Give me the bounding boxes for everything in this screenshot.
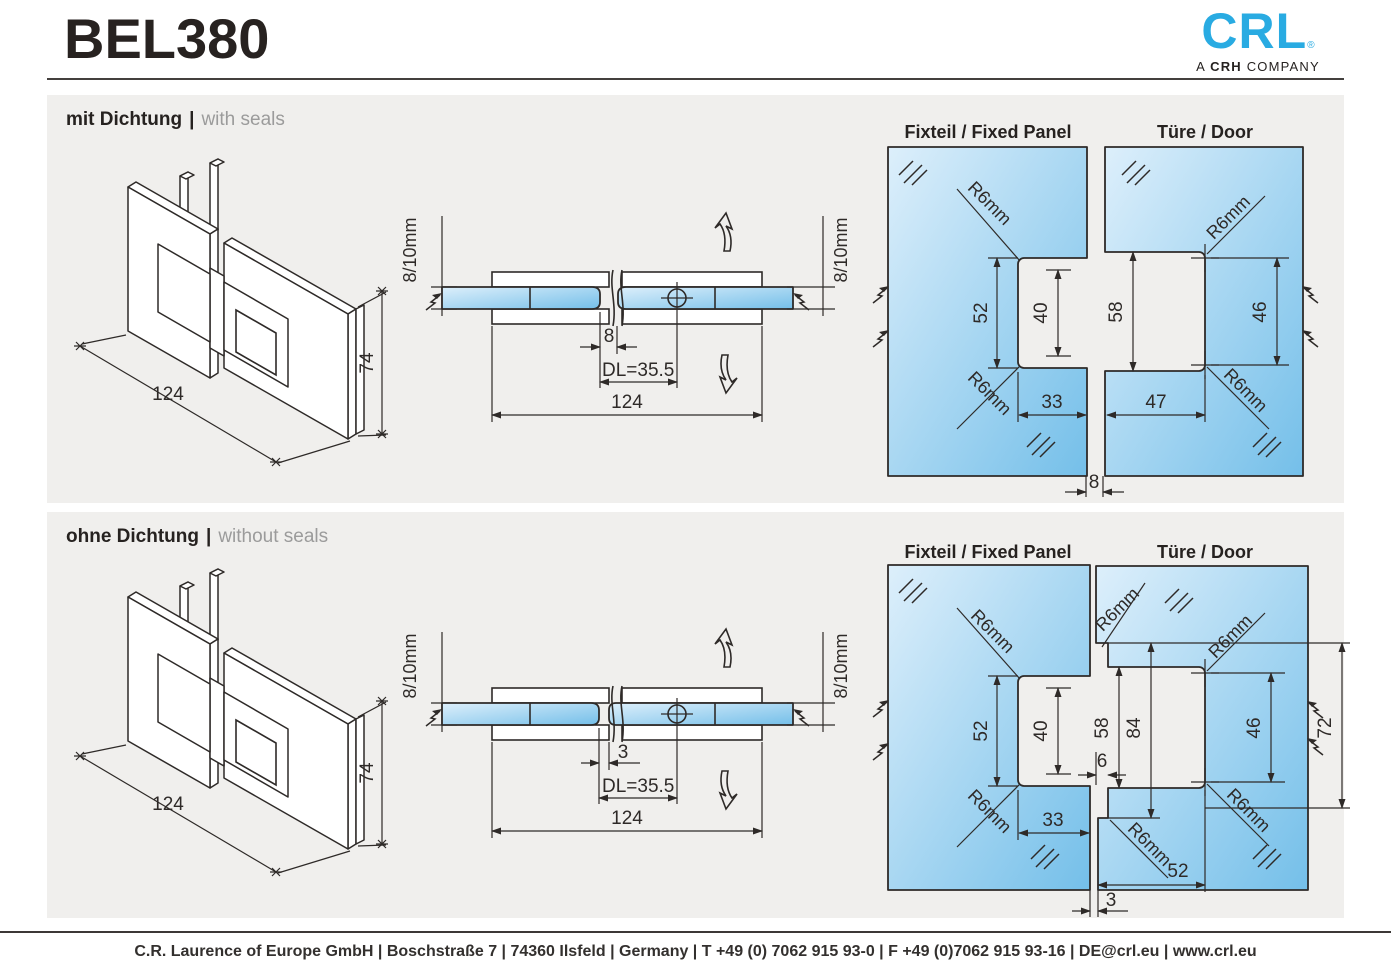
cross-section-drawing: 8/10mm 8/10mm 8 DL=35.5 — [395, 192, 865, 437]
crl-logo-wordmark: CRL — [1201, 6, 1307, 56]
glass-thickness-label: 8/10mm — [831, 217, 851, 282]
swing-up-arrow-icon — [715, 629, 732, 667]
glass-left — [442, 287, 600, 309]
dim-52: 52 — [971, 720, 992, 741]
overall-dim-label: 124 — [611, 392, 643, 413]
section-heading: mit Dichtung|with seals — [66, 109, 285, 131]
logo-sub-prefix: A — [1196, 59, 1205, 74]
section-heading: ohne Dichtung|without seals — [66, 526, 328, 548]
dim-40: 40 — [1031, 720, 1052, 741]
page-title: BEL380 — [64, 8, 269, 70]
dim-58: 58 — [1106, 301, 1127, 322]
gap-dim-label: 3 — [618, 742, 629, 763]
crl-logo-subline: A CRH COMPANY — [1178, 59, 1338, 74]
heading-german: mit Dichtung — [66, 109, 182, 130]
dim-33: 33 — [1041, 392, 1062, 413]
section-without-seals: ohne Dichtung|without seals 124 — [47, 512, 1344, 918]
gap-label: 3 — [1106, 890, 1117, 911]
dl-dimension: DL=35.5 — [599, 730, 677, 804]
glass-left — [442, 703, 599, 725]
footer-divider — [0, 931, 1391, 933]
dim-47: 47 — [1145, 392, 1166, 413]
dl-dim-label: DL=35.5 — [602, 776, 674, 797]
swing-down-arrow-icon — [720, 355, 737, 393]
heading-divider: | — [189, 109, 194, 130]
glass-thickness-right: 8/10mm — [787, 632, 851, 732]
dl-dim-label: DL=35.5 — [602, 360, 674, 381]
iso-width-dim: 124 — [152, 794, 184, 815]
datasheet-page: { "header": { "title": "BEL380" }, "logo… — [0, 0, 1391, 973]
glass-thickness-right: 8/10mm — [787, 216, 851, 316]
swing-down-arrow-icon — [720, 771, 737, 809]
section-with-seals: mit Dichtung|with seals 124 — [47, 95, 1344, 503]
dim-46: 46 — [1244, 717, 1265, 738]
swing-up-arrow-icon — [715, 213, 732, 251]
overall-dim-label: 124 — [611, 808, 643, 829]
door-title: Türe / Door — [1157, 542, 1253, 562]
dim-52-door: 52 — [1167, 861, 1188, 882]
heading-german: ohne Dichtung — [66, 526, 199, 547]
heading-english: with seals — [201, 109, 284, 130]
fixed-panel-title: Fixteil / Fixed Panel — [904, 542, 1071, 562]
glass-prep-drawing: Fixteil / Fixed Panel Türe / Door 52 40 … — [875, 115, 1355, 507]
glass-prep-drawing: Fixteil / Fixed Panel Türe / Door 52 40 … — [875, 545, 1375, 945]
glass-thickness-label: 8/10mm — [831, 633, 851, 698]
door-glass — [1105, 147, 1303, 476]
glass-thickness-label: 8/10mm — [400, 633, 420, 698]
dim-84: 84 — [1124, 717, 1145, 739]
door-title: Türe / Door — [1157, 122, 1253, 142]
glass-right — [618, 287, 793, 309]
panel-gap-dim: 3 — [1072, 890, 1128, 917]
iso-hinge-drawing: 124 74 — [60, 150, 400, 480]
heading-divider: | — [206, 526, 211, 547]
logo-sub-company: COMPANY — [1247, 59, 1320, 74]
footer-company-info: C.R. Laurence of Europe GmbH | Boschstra… — [0, 943, 1391, 961]
glass-thickness-label: 8/10mm — [400, 217, 420, 282]
dim-33: 33 — [1042, 810, 1063, 831]
dim-52: 52 — [971, 302, 992, 323]
dim-46: 46 — [1250, 301, 1271, 322]
iso-height-dim: 74 — [357, 762, 378, 784]
dim-6: 6 — [1097, 751, 1108, 772]
iso-hinge-drawing: 124 74 — [60, 560, 400, 890]
fixed-panel-title: Fixteil / Fixed Panel — [904, 122, 1071, 142]
heading-english: without seals — [218, 526, 328, 547]
header-divider — [47, 78, 1344, 80]
iso-height-dim: 74 — [357, 352, 378, 374]
dim-58: 58 — [1092, 717, 1113, 738]
logo-sub-crh: CRH — [1210, 59, 1242, 74]
dim-40: 40 — [1031, 302, 1052, 323]
cross-section-drawing: 8/10mm 8/10mm 3 DL=35.5 — [395, 608, 865, 853]
registered-mark-icon: ® — [1307, 40, 1314, 51]
dim-72: 72 — [1315, 717, 1336, 738]
crl-logo: CRL® A CRH COMPANY — [1178, 6, 1338, 74]
glass-right — [609, 703, 793, 725]
gap-label: 8 — [1089, 472, 1100, 493]
gap-dim-label: 8 — [604, 326, 615, 347]
iso-width-dim: 124 — [152, 384, 184, 405]
